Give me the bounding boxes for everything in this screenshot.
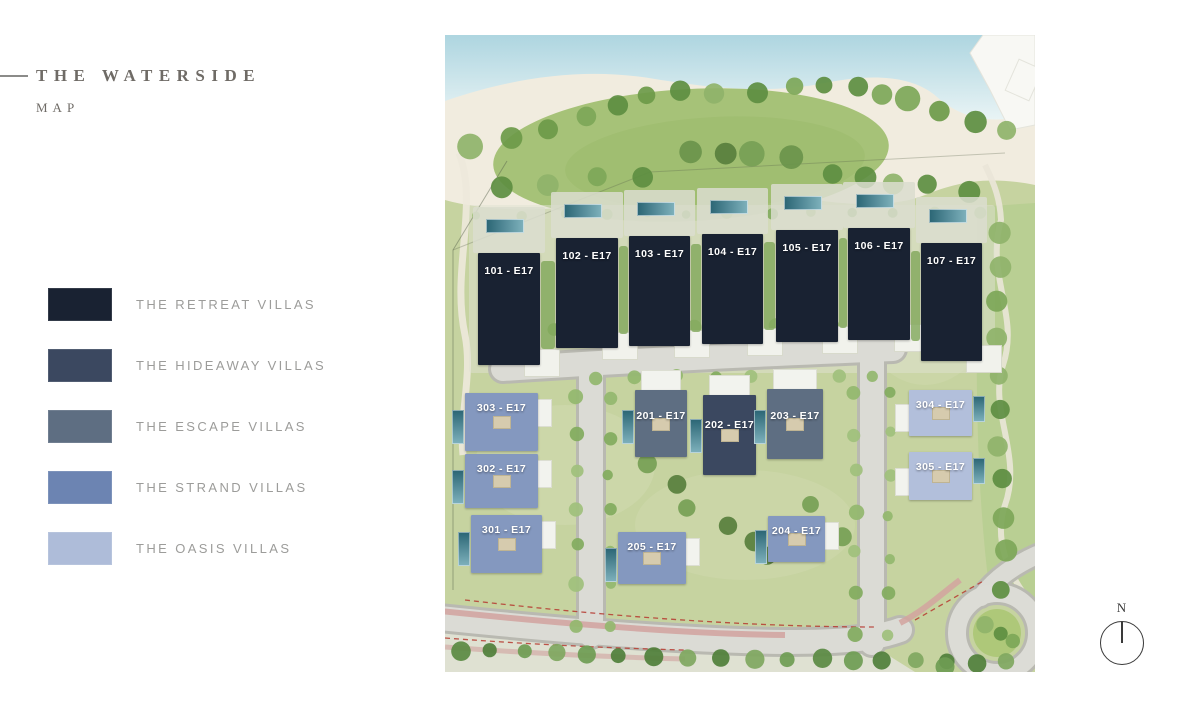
- villa-terrace: [773, 369, 817, 391]
- pool-icon: [486, 219, 524, 233]
- legend-swatch-escape: [48, 410, 112, 443]
- villa-label: 205 - E17: [610, 541, 694, 553]
- site-map: 101 - E17102 - E17103 - E17104 - E17105 …: [445, 35, 1035, 672]
- pool-icon: [784, 196, 822, 210]
- villa-label: 203 - E17: [759, 410, 831, 422]
- pool-icon: [452, 470, 464, 504]
- hedge: [619, 246, 628, 334]
- villa-plot-107[interactable]: 107 - E17: [921, 243, 982, 361]
- villa-label: 104 - E17: [694, 246, 771, 258]
- page-title: THE WATERSIDE: [36, 66, 261, 86]
- hedge: [541, 261, 555, 349]
- legend-item-strand: THE STRAND VILLAS: [48, 471, 326, 504]
- villa-courtyard: [493, 475, 511, 488]
- villa-label: 106 - E17: [840, 240, 918, 252]
- pool-icon: [710, 200, 748, 214]
- villa-label: 103 - E17: [621, 248, 698, 260]
- hedge: [839, 238, 847, 328]
- pool-icon: [637, 202, 675, 216]
- compass: N: [1096, 600, 1148, 665]
- legend: THE RETREAT VILLAS THE HIDEAWAY VILLAS T…: [48, 288, 326, 593]
- villa-plot-103[interactable]: 103 - E17: [629, 236, 690, 346]
- villa-plot-302[interactable]: 302 - E17: [465, 454, 538, 508]
- pool-icon: [856, 194, 894, 208]
- legend-label-retreat: THE RETREAT VILLAS: [136, 297, 316, 312]
- pool-icon: [458, 532, 470, 566]
- legend-label-strand: THE STRAND VILLAS: [136, 480, 308, 495]
- villas-layer: 101 - E17102 - E17103 - E17104 - E17105 …: [445, 35, 1035, 672]
- legend-item-hideaway: THE HIDEAWAY VILLAS: [48, 349, 326, 382]
- villa-terrace: [709, 375, 750, 397]
- villa-plot-104[interactable]: 104 - E17: [702, 234, 763, 344]
- villa-plot-303[interactable]: 303 - E17: [465, 393, 538, 451]
- page-subtitle: MAP: [36, 100, 261, 116]
- villa-plot-304[interactable]: 304 - E17: [909, 390, 972, 436]
- legend-swatch-hideaway: [48, 349, 112, 382]
- villa-label: 201 - E17: [627, 410, 695, 422]
- pool-icon: [564, 204, 602, 218]
- compass-icon: [1100, 621, 1144, 665]
- villa-label: 105 - E17: [768, 242, 846, 254]
- villa-label: 101 - E17: [470, 265, 548, 277]
- legend-label-escape: THE ESCAPE VILLAS: [136, 419, 307, 434]
- legend-label-oasis: THE OASIS VILLAS: [136, 541, 291, 556]
- villa-label: 301 - E17: [463, 524, 550, 536]
- compass-needle: [1121, 622, 1123, 643]
- villa-plot-203[interactable]: 203 - E17: [767, 389, 823, 459]
- page: THE WATERSIDE MAP THE RETREAT VILLAS THE…: [0, 0, 1200, 714]
- villa-label: 102 - E17: [548, 250, 626, 262]
- villa-plot-305[interactable]: 305 - E17: [909, 452, 972, 500]
- pool-icon: [929, 209, 967, 223]
- legend-item-oasis: THE OASIS VILLAS: [48, 532, 326, 565]
- header: THE WATERSIDE MAP: [0, 66, 261, 116]
- villa-label: 107 - E17: [913, 255, 990, 267]
- legend-swatch-oasis: [48, 532, 112, 565]
- legend-item-escape: THE ESCAPE VILLAS: [48, 410, 326, 443]
- pool-icon: [452, 410, 464, 444]
- villa-plot-105[interactable]: 105 - E17: [776, 230, 838, 342]
- villa-label: 302 - E17: [457, 463, 546, 475]
- villa-plot-202[interactable]: 202 - E17: [703, 395, 756, 475]
- villa-plot-205[interactable]: 205 - E17: [618, 532, 686, 584]
- villa-label: 305 - E17: [901, 461, 980, 473]
- villa-terrace: [641, 370, 681, 392]
- legend-swatch-retreat: [48, 288, 112, 321]
- villa-courtyard: [498, 538, 516, 551]
- compass-north-label: N: [1096, 600, 1148, 616]
- villa-plot-201[interactable]: 201 - E17: [635, 390, 687, 457]
- legend-item-retreat: THE RETREAT VILLAS: [48, 288, 326, 321]
- hedge: [911, 251, 920, 341]
- villa-plot-102[interactable]: 102 - E17: [556, 238, 618, 348]
- villa-courtyard: [493, 416, 511, 429]
- villa-label: 304 - E17: [901, 399, 980, 411]
- villa-plot-101[interactable]: 101 - E17: [478, 253, 540, 365]
- villa-label: 303 - E17: [457, 402, 546, 414]
- villa-courtyard: [643, 552, 661, 565]
- title-rule: [0, 75, 28, 77]
- hedge: [764, 242, 775, 330]
- villa-plot-301[interactable]: 301 - E17: [471, 515, 542, 573]
- villa-plot-204[interactable]: 204 - E17: [768, 516, 825, 562]
- villa-plot-106[interactable]: 106 - E17: [848, 228, 910, 340]
- villa-label: 204 - E17: [760, 525, 833, 537]
- legend-label-hideaway: THE HIDEAWAY VILLAS: [136, 358, 326, 373]
- legend-swatch-strand: [48, 471, 112, 504]
- hedge: [691, 244, 701, 332]
